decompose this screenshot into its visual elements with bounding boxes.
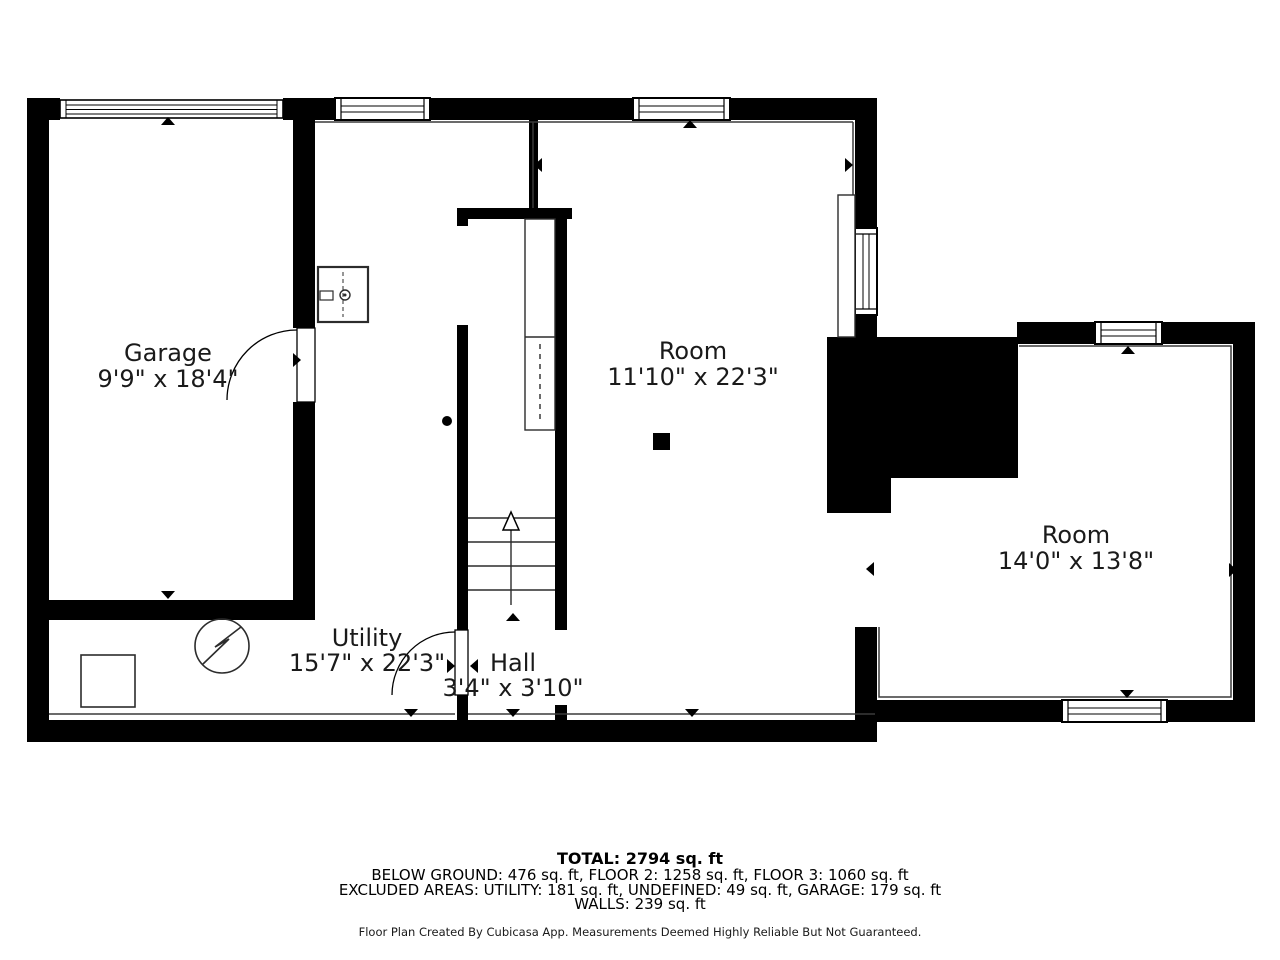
column-post	[653, 433, 670, 450]
window	[1095, 322, 1162, 344]
room1-dims: 11'10" x 22'3"	[607, 363, 779, 391]
window	[633, 98, 730, 120]
hall-label: Hall	[490, 649, 536, 677]
door-swing-garage	[227, 328, 315, 402]
garage-label: Garage	[124, 339, 212, 367]
appliance-icon	[81, 655, 135, 707]
closet	[525, 219, 555, 430]
total-area: TOTAL: 2794 sq. ft	[0, 852, 1280, 867]
hall-dims: 3'4" x 3'10"	[442, 674, 583, 702]
room2-label: Room	[1042, 521, 1110, 549]
disclaimer: Floor Plan Created By Cubicasa App. Meas…	[0, 925, 1280, 940]
window	[335, 98, 430, 120]
room1-label: Room	[659, 337, 727, 365]
floor-plan-page: Garage 9'9" x 18'4" Utility 15'7" x 22'3…	[0, 0, 1280, 960]
room2-dims: 14'0" x 13'8"	[998, 547, 1154, 575]
electrical-panel-icon	[195, 619, 249, 673]
window	[855, 228, 877, 315]
utility-dims: 15'7" x 22'3"	[289, 649, 445, 677]
floor-point	[442, 416, 452, 426]
utility-label: Utility	[332, 624, 403, 652]
cabinet	[838, 195, 855, 337]
garage-door	[60, 100, 283, 118]
walls	[27, 98, 1255, 742]
dimension-markers	[38, 117, 1237, 717]
undefined-area	[827, 337, 1018, 478]
garage-dims: 9'9" x 18'4"	[97, 365, 238, 393]
water-heater-icon	[318, 267, 368, 322]
stairs-up-arrow	[503, 512, 519, 530]
stairs	[468, 512, 555, 605]
summary-footer: TOTAL: 2794 sq. ft BELOW GROUND: 476 sq.…	[0, 852, 1280, 940]
walls-area: WALLS: 239 sq. ft	[0, 897, 1280, 912]
interior-face-lines	[49, 122, 1231, 714]
floor-plan-drawing: Garage 9'9" x 18'4" Utility 15'7" x 22'3…	[0, 0, 1280, 780]
window	[1062, 700, 1167, 722]
